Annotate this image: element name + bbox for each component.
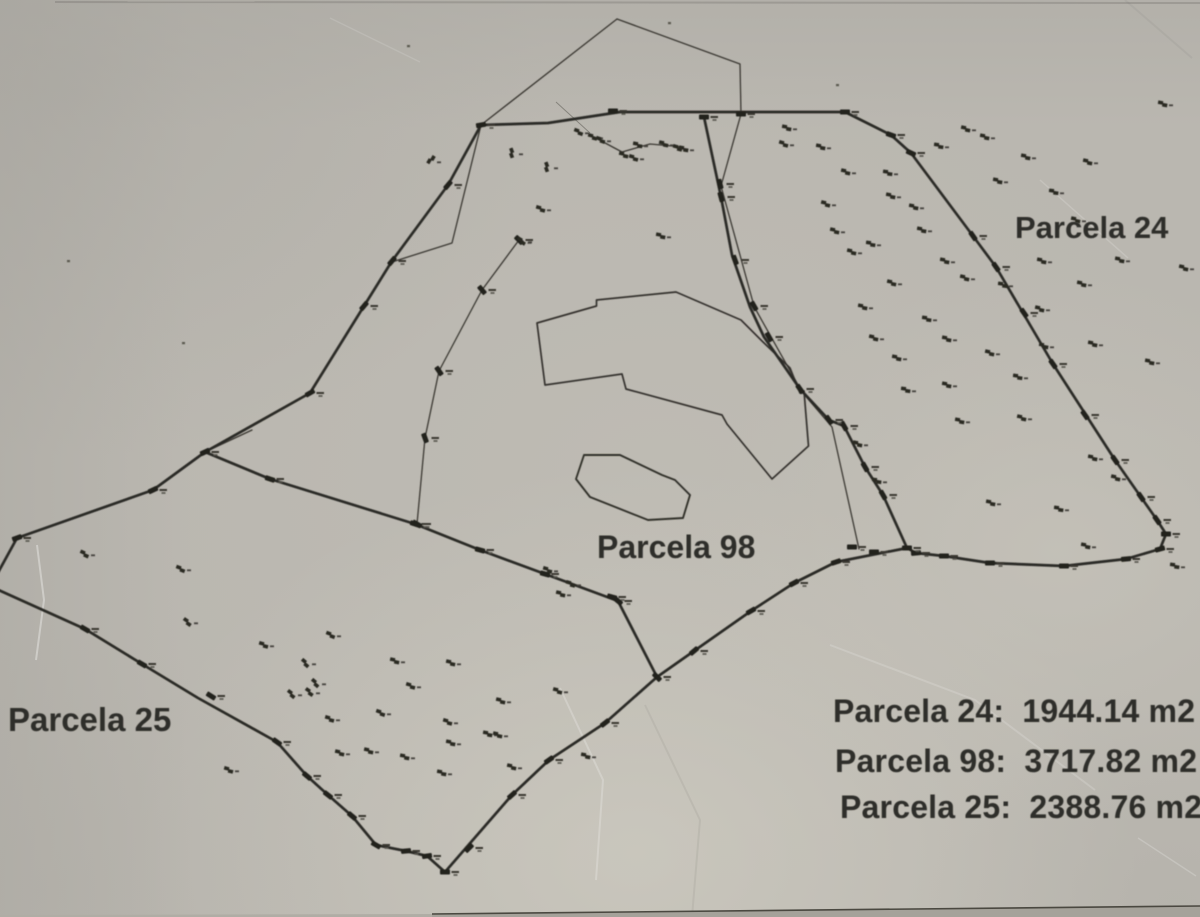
svg-text:Parcela 25: 2388.76 m2: Parcela 25: 2388.76 m2 bbox=[840, 789, 1200, 825]
svg-text:Parcela 98: 3717.82 m2: Parcela 98: 3717.82 m2 bbox=[835, 743, 1197, 779]
svg-text:Parcela 25: Parcela 25 bbox=[8, 701, 171, 738]
svg-text:Parcela 24: Parcela 24 bbox=[1015, 210, 1169, 245]
svg-text:Parcela 24: 1944.14 m2: Parcela 24: 1944.14 m2 bbox=[833, 693, 1195, 729]
svg-text:Parcela 98: Parcela 98 bbox=[597, 529, 755, 565]
